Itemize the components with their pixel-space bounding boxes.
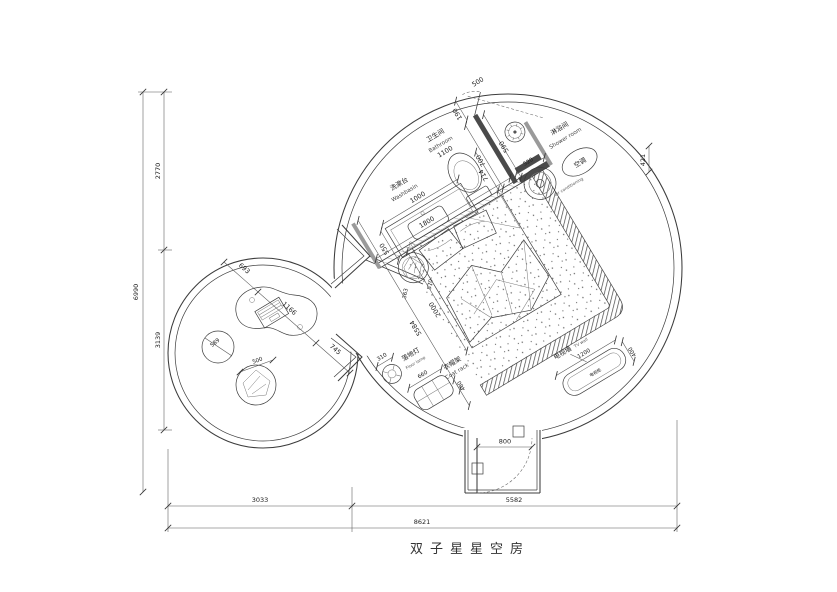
svg-text:700: 700 (474, 153, 487, 168)
shower-door (462, 86, 489, 115)
dim-height-top: 2770 (154, 163, 162, 180)
bed-platform (402, 170, 627, 395)
floor-lamp (379, 361, 405, 387)
floor-plan-drawing: 1000 洗漱台 Washbasin 550 714 卫生间 Bathroom … (0, 0, 837, 592)
svg-text:550: 550 (378, 241, 391, 256)
floor-plan-page: 1000 洗漱台 Washbasin 550 714 卫生间 Bathroom … (0, 0, 837, 592)
bottom-dimensions: 3033 5582 8621 (165, 420, 680, 532)
dim-width-right: 5582 (506, 496, 523, 504)
svg-text:660: 660 (417, 370, 430, 381)
svg-text:5584: 5584 (408, 319, 423, 337)
dim-421: 421 (639, 143, 652, 175)
lounge-circle-shell (168, 258, 358, 448)
dim-589: 589 (209, 337, 221, 349)
door-swing-arc (477, 438, 532, 493)
dim-500-chair: 500 (252, 356, 264, 365)
dim-total-height: 6990 (132, 284, 140, 301)
svg-text:421: 421 (639, 154, 647, 166)
svg-text:190: 190 (451, 107, 464, 122)
tv-dim-400: 400 (618, 335, 642, 365)
dim-363: 363 (402, 287, 410, 299)
dim-total-width: 8621 (414, 518, 431, 526)
dim-693: 693 (237, 261, 252, 275)
main-room-interior: 1000 洗漱台 Washbasin 550 714 卫生间 Bathroom … (273, 45, 700, 481)
pouf: 589 (202, 331, 234, 363)
kidney-table (236, 287, 317, 335)
svg-text:800: 800 (499, 438, 511, 446)
washbasin-dim-1000: 1000 (375, 170, 462, 229)
svg-text:空调: 空调 (572, 155, 588, 169)
dim-310: 310 (370, 349, 397, 371)
drawing-title: 双子星星空房 (410, 541, 530, 557)
svg-text:air conditioning: air conditioning (553, 176, 584, 197)
dim-500-door: 500 (470, 75, 485, 88)
svg-text:310: 310 (376, 352, 389, 363)
blanket-chair: 500 (236, 356, 276, 405)
dim-height-bottom: 3139 (154, 332, 162, 349)
left-dimensions: 6990 2770 3139 (132, 89, 172, 495)
washbasin-end-wall (351, 222, 381, 269)
svg-text:400: 400 (627, 345, 638, 358)
svg-text:400: 400 (456, 379, 467, 392)
svg-text:714: 714 (477, 168, 490, 183)
dim-width-left: 3033 (252, 496, 269, 504)
